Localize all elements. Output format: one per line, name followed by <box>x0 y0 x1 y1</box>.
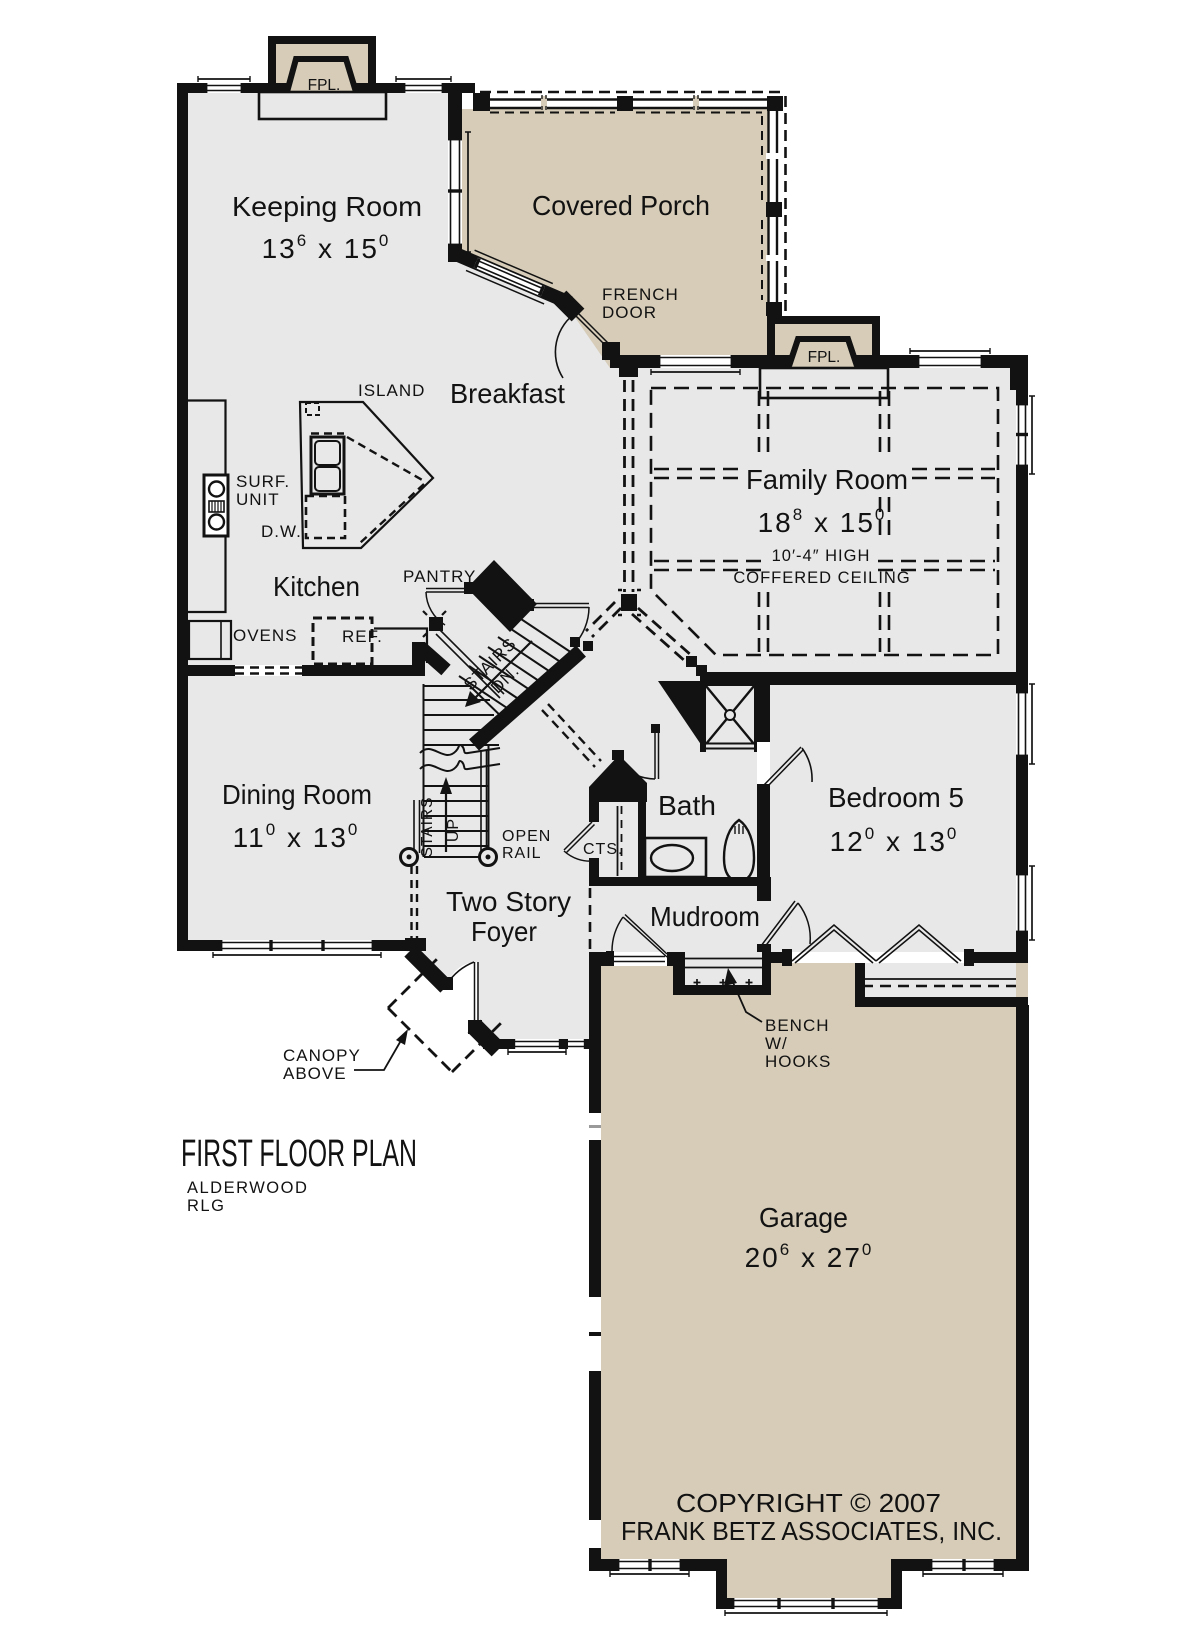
svg-text:FPL.: FPL. <box>808 349 841 366</box>
svg-text:DOOR: DOOR <box>602 303 657 322</box>
svg-text:COPYRIGHT © 2007: COPYRIGHT © 2007 <box>676 1488 941 1518</box>
svg-text:FIRST FLOOR PLAN: FIRST FLOOR PLAN <box>181 1133 417 1175</box>
svg-text:RAIL: RAIL <box>502 845 542 862</box>
svg-text:CTS.: CTS. <box>583 841 623 858</box>
svg-text:Keeping Room: Keeping Room <box>232 191 422 222</box>
svg-text:Foyer: Foyer <box>471 916 537 947</box>
svg-text:HOOKS: HOOKS <box>765 1052 831 1071</box>
svg-text:Garage: Garage <box>759 1202 848 1233</box>
svg-text:ISLAND: ISLAND <box>358 381 425 400</box>
svg-text:FRANK BETZ ASSOCIATES, INC.: FRANK BETZ ASSOCIATES, INC. <box>621 1516 1002 1546</box>
svg-text:OVENS: OVENS <box>233 626 298 645</box>
svg-text:Kitchen: Kitchen <box>273 571 360 602</box>
svg-text:W/: W/ <box>765 1034 788 1053</box>
svg-text:UNIT: UNIT <box>236 490 280 509</box>
svg-text:CANOPY: CANOPY <box>283 1046 361 1065</box>
svg-text:136 x 150: 136 x 150 <box>262 231 391 264</box>
svg-text:ALDERWOOD: ALDERWOOD <box>187 1179 308 1197</box>
svg-text:RLG: RLG <box>187 1197 225 1215</box>
svg-text:Family Room: Family Room <box>746 464 908 495</box>
svg-text:110 x 130: 110 x 130 <box>233 820 360 853</box>
svg-text:FRENCH: FRENCH <box>602 285 679 304</box>
svg-text:Mudroom: Mudroom <box>650 901 760 932</box>
svg-text:Dining Room: Dining Room <box>222 779 372 810</box>
svg-text:PANTRY: PANTRY <box>403 567 476 586</box>
svg-text:120 x 130: 120 x 130 <box>830 824 959 857</box>
svg-text:COFFERED CEILING: COFFERED CEILING <box>733 569 910 587</box>
svg-text:Covered Porch: Covered Porch <box>532 190 710 221</box>
svg-text:STAIRS: STAIRS <box>419 797 436 858</box>
svg-text:D.W.: D.W. <box>261 522 302 541</box>
svg-text:188 x 150: 188 x 150 <box>758 505 887 538</box>
svg-text:OPEN: OPEN <box>502 828 551 845</box>
svg-text:UP: UP <box>445 818 462 842</box>
svg-text:206 x 270: 206 x 270 <box>745 1240 874 1273</box>
svg-text:SURF.: SURF. <box>236 472 290 491</box>
svg-text:REF.: REF. <box>342 627 383 646</box>
svg-text:Breakfast: Breakfast <box>450 378 565 409</box>
svg-text:BENCH: BENCH <box>765 1016 830 1035</box>
svg-text:Two Story: Two Story <box>446 886 571 917</box>
svg-text:ABOVE: ABOVE <box>283 1064 347 1083</box>
svg-text:Bedroom 5: Bedroom 5 <box>828 782 964 813</box>
svg-text:10′-4″ HIGH: 10′-4″ HIGH <box>772 547 871 565</box>
svg-text:Bath: Bath <box>658 790 716 821</box>
